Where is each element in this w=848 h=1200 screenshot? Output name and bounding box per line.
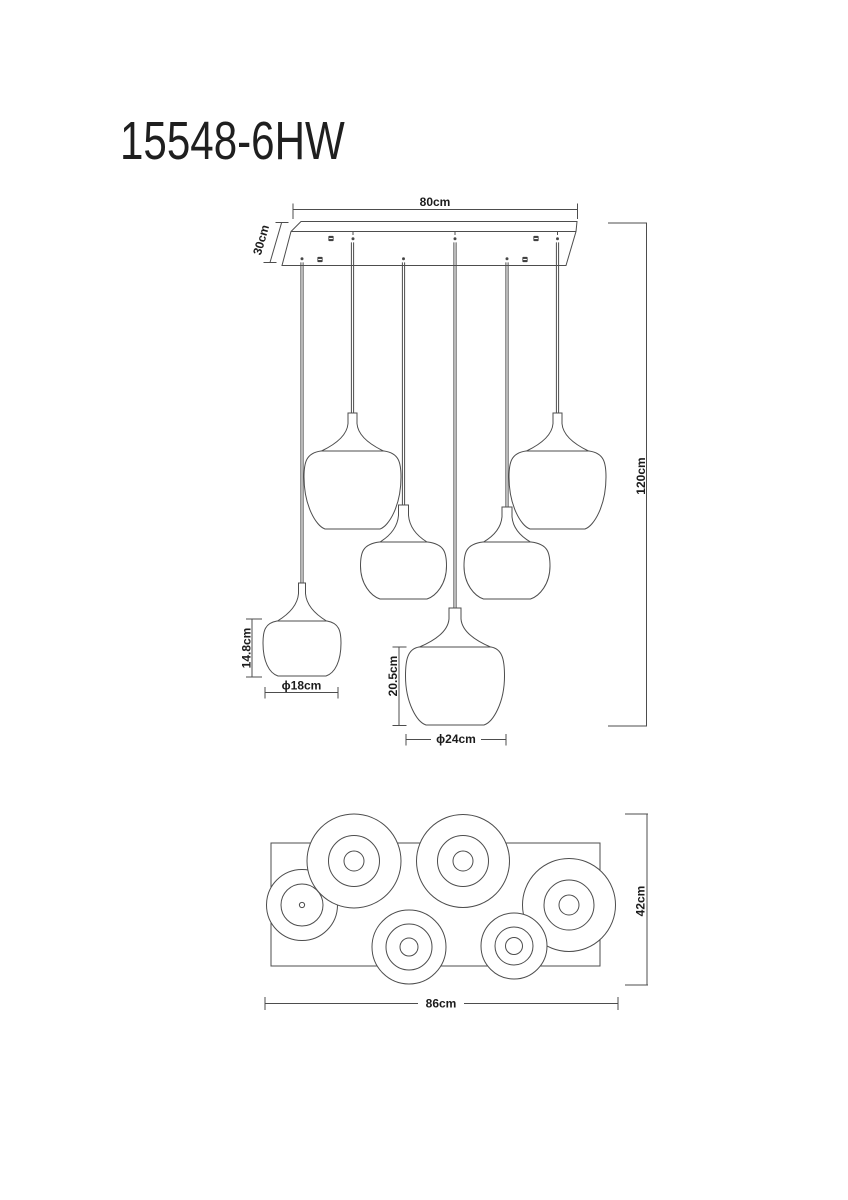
- suspension-wire-1: [301, 262, 303, 583]
- dimension-plan-depth: 42cm: [625, 814, 648, 985]
- suspension-wire-3: [402, 262, 404, 505]
- cord-grip-hole: [557, 238, 559, 240]
- dim-line: [270, 223, 282, 263]
- shade-neck: [527, 413, 589, 451]
- plan-view: 86cm 42cm: [265, 814, 648, 1011]
- cord-grip-hole: [403, 258, 405, 260]
- shade-outer-rim: [481, 913, 547, 979]
- shade-neck: [322, 413, 384, 451]
- dimension-canopy-depth: 30cm: [250, 223, 288, 263]
- front-view: 80cm 30cm 120cm 14.8cm: [240, 195, 649, 746]
- suspension-wire-5: [506, 262, 508, 507]
- dimension-canopy-width: 80cm: [293, 195, 578, 219]
- shade-bowl: [509, 451, 606, 529]
- dimension-plan-width: 86cm: [265, 997, 618, 1011]
- shade-outer-rim: [372, 910, 446, 984]
- suspension-wire-6: [556, 242, 558, 413]
- shade-bowl: [304, 451, 401, 529]
- dim-label-120cm: 120cm: [634, 457, 648, 494]
- cord-grip-hole: [352, 238, 354, 240]
- shade-plan-top-left: [307, 814, 401, 908]
- dimension-overall-height: 120cm: [608, 223, 648, 726]
- shade-bowl: [406, 647, 505, 725]
- dimension-small-shade-height: 14.8cm: [240, 619, 263, 677]
- dim-label-86cm: 86cm: [426, 997, 457, 1011]
- shade-bowl: [464, 542, 550, 599]
- screw-slot: [329, 238, 333, 239]
- shade-bowl: [361, 542, 447, 599]
- canopy-outline: [282, 222, 577, 266]
- cord-grip-hole: [454, 238, 456, 240]
- pendant-shade-6: [509, 413, 606, 529]
- dimension-large-shade-height: 20.5cm: [386, 647, 407, 726]
- shade-neck: [420, 608, 491, 647]
- screw-slot: [523, 259, 527, 260]
- suspension-wire-4: [454, 242, 456, 608]
- shade-outer-rim: [417, 815, 510, 908]
- suspension-wire-2: [351, 242, 353, 413]
- ceiling-canopy: [282, 222, 577, 266]
- shade-outer-rim: [307, 814, 401, 908]
- dim-label-80cm: 80cm: [420, 195, 451, 209]
- cord-grip-hole: [301, 258, 303, 260]
- dim-label-14-8cm: 14.8cm: [240, 628, 254, 669]
- dim-label-30cm: 30cm: [250, 223, 272, 256]
- pendant-shade-4: [406, 608, 505, 725]
- dimension-small-shade-diameter: ϕ18cm: [265, 679, 338, 699]
- pendant-shade-1: [263, 583, 341, 676]
- pendant-shade-2: [304, 413, 401, 529]
- drawing-page: 15548-6HW 80cm: [0, 0, 848, 1200]
- dim-label-d24cm: ϕ24cm: [436, 732, 476, 746]
- shade-neck: [278, 583, 327, 621]
- technical-drawing: 80cm 30cm 120cm 14.8cm: [0, 0, 848, 1200]
- shade-plan-bottom-right: [481, 913, 547, 979]
- shade-plan-top-center: [417, 815, 510, 908]
- shade-bowl: [263, 621, 341, 676]
- dimension-large-shade-diameter: ϕ24cm: [406, 732, 506, 746]
- dim-label-20-5cm: 20.5cm: [386, 656, 400, 697]
- cord-grip-hole: [506, 258, 508, 260]
- screw-slot: [534, 238, 538, 239]
- screw-slot: [318, 259, 322, 260]
- dim-label-42cm: 42cm: [634, 886, 648, 917]
- shade-plan-bottom-center: [372, 910, 446, 984]
- dim-label-d18cm: ϕ18cm: [282, 679, 322, 693]
